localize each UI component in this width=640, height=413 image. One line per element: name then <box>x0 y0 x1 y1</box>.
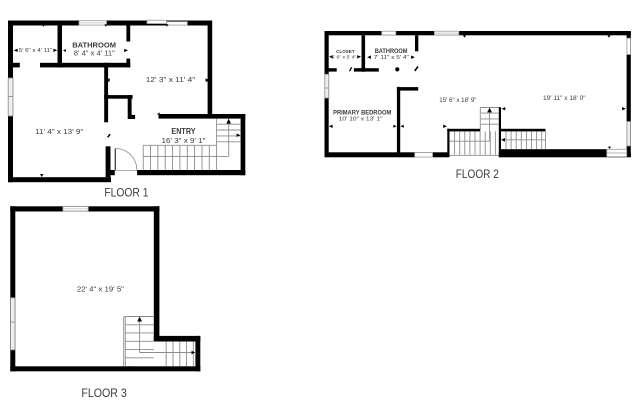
svg-text:5' 6" x 4' 11": 5' 6" x 4' 11" <box>19 48 53 54</box>
svg-text:FLOOR 2: FLOOR 2 <box>456 167 499 181</box>
svg-text:22' 4" x 19' 5": 22' 4" x 19' 5" <box>77 286 125 293</box>
svg-text:CLOSET: CLOSET <box>336 49 355 54</box>
svg-text:7' 11" x 5' 4": 7' 11" x 5' 4" <box>374 55 409 61</box>
svg-text:5' 6" x 5' 4": 5' 6" x 5' 4" <box>331 54 357 59</box>
svg-text:BATHROOM: BATHROOM <box>375 48 408 55</box>
svg-text:FLOOR 1: FLOOR 1 <box>104 186 148 200</box>
svg-text:19' 11" x 18' 0": 19' 11" x 18' 0" <box>543 95 586 102</box>
svg-text:10' 10" x 13' 1": 10' 10" x 13' 1" <box>339 116 383 122</box>
svg-text:16' 3" x 9' 1": 16' 3" x 9' 1" <box>162 136 206 145</box>
svg-text:15' 6" x 18' 9": 15' 6" x 18' 9" <box>439 97 476 104</box>
svg-text:BATHROOM: BATHROOM <box>72 40 116 49</box>
svg-text:FLOOR 3: FLOOR 3 <box>81 386 126 400</box>
svg-text:ENTRY: ENTRY <box>171 126 195 136</box>
svg-text:11' 4" x 13' 9": 11' 4" x 13' 9" <box>35 127 84 136</box>
svg-text:12' 3" x 11' 4": 12' 3" x 11' 4" <box>146 75 196 84</box>
svg-text:PRIMARY BEDROOM: PRIMARY BEDROOM <box>333 109 391 116</box>
svg-text:8' 4" x 4' 11": 8' 4" x 4' 11" <box>74 50 116 57</box>
